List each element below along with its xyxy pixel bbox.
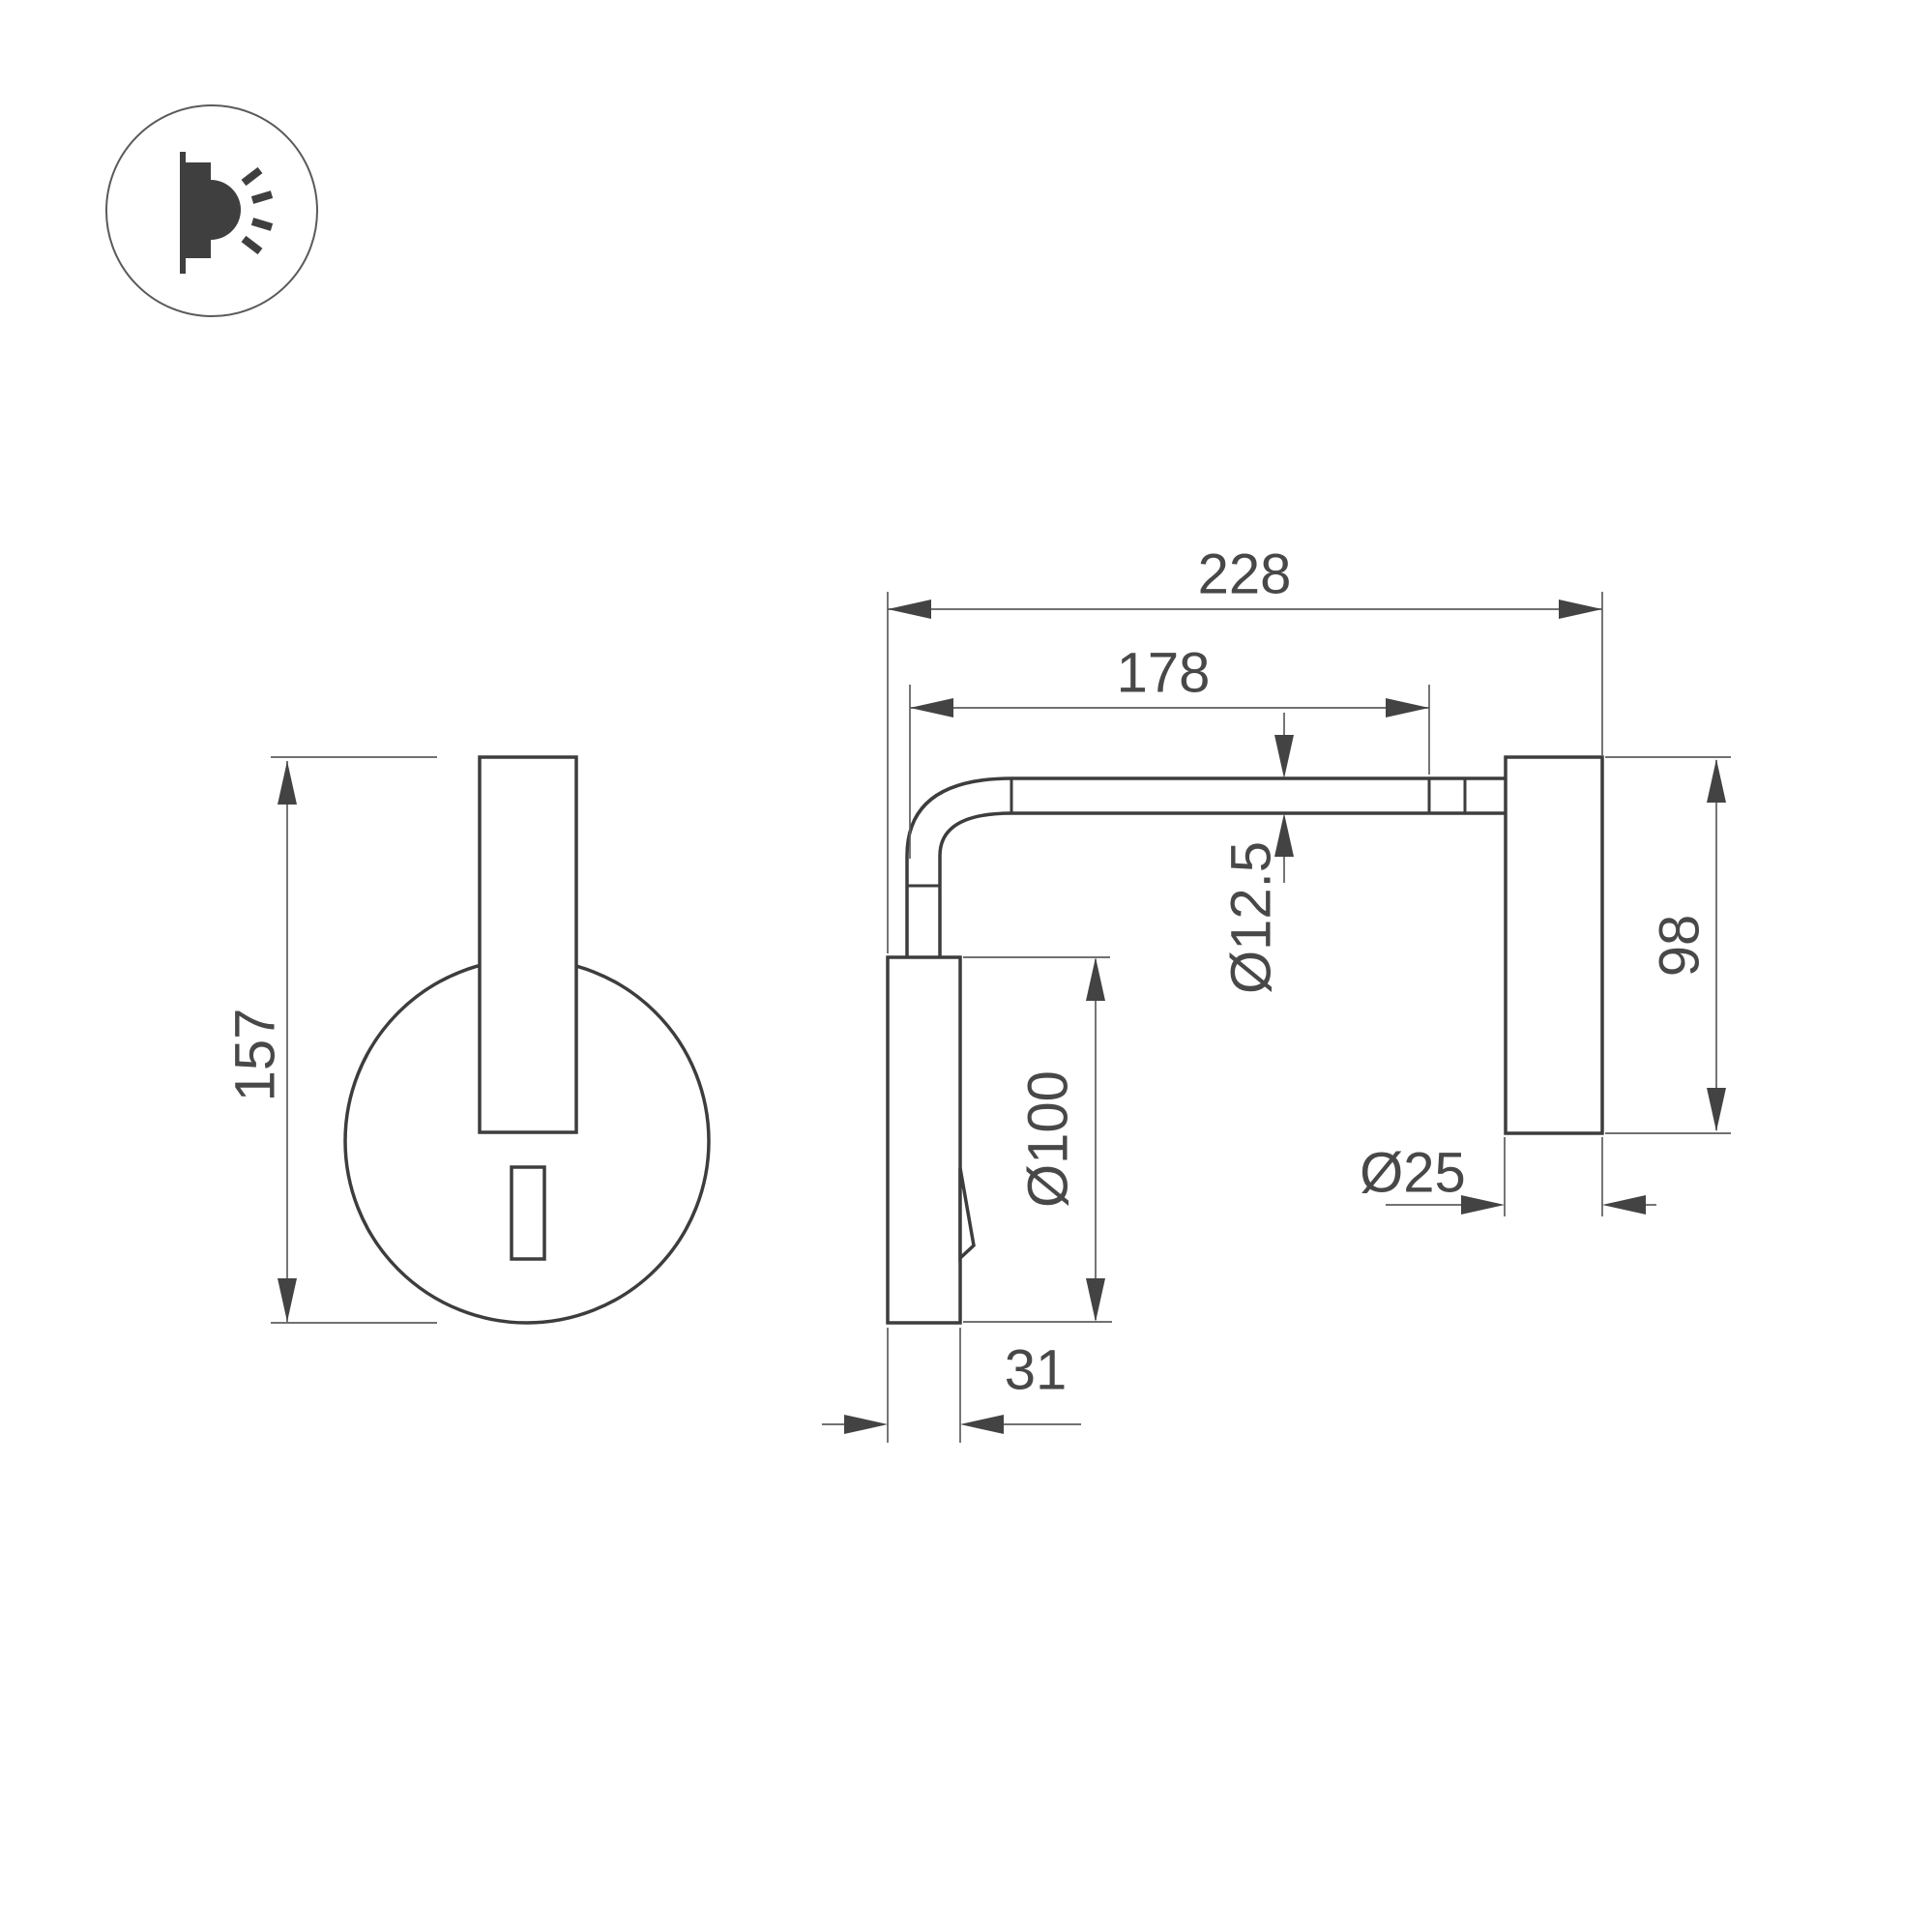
arrow-up [278,761,297,805]
logo-wall-line [180,152,186,274]
dim-label-157: 157 [224,1009,287,1102]
arrow-left [910,698,953,717]
arrow-right [1461,1195,1505,1215]
arrow-up [1086,957,1105,1001]
lamp-head-side [1506,757,1602,1133]
logo-lamp-body [186,162,211,258]
dim-label-100: Ø100 [1017,1070,1080,1208]
dim-label-25: Ø25 [1360,1142,1466,1205]
dim-arm-length: 178 [910,642,1429,860]
base-side [888,957,960,1323]
arrow-left [888,600,931,619]
arm-outer-edge [907,778,1506,957]
dim-label-98: 98 [1649,915,1712,978]
side-view: 228 178 Ø12.5 [822,543,1731,1444]
dim-base-depth: 31 [822,1328,1081,1443]
dim-head-diameter: Ø25 [1360,1137,1656,1216]
switch-front [512,1167,544,1259]
technical-drawing: 157 [0,0,1932,1932]
wall-light-icon [106,105,317,316]
dim-head-height: 98 [1605,757,1731,1133]
dim-label-31: 31 [1005,1339,1068,1402]
arrow-right [1386,698,1429,717]
arrow-down [1086,1278,1105,1322]
dim-label-178: 178 [1117,642,1211,705]
lamp-head-front [480,757,576,1132]
dim-base-diameter: Ø100 [963,957,1112,1322]
arrow-down [1274,735,1294,778]
arrow-right [1559,600,1602,619]
arrow-up [1707,759,1726,803]
dim-arm-diameter: Ø12.5 [1220,713,1295,994]
dim-label-12-5: Ø12.5 [1220,841,1283,994]
arrow-right [844,1415,888,1434]
arrow-down [278,1278,297,1322]
drawing-canvas: 157 [0,0,1932,1932]
arrow-down [1707,1088,1726,1131]
arm-tube [907,778,1506,957]
front-view: 157 [224,757,710,1323]
switch-side [960,1168,974,1258]
dim-label-228: 228 [1198,543,1292,606]
arrow-left [960,1415,1004,1434]
arrow-left [1602,1195,1646,1215]
